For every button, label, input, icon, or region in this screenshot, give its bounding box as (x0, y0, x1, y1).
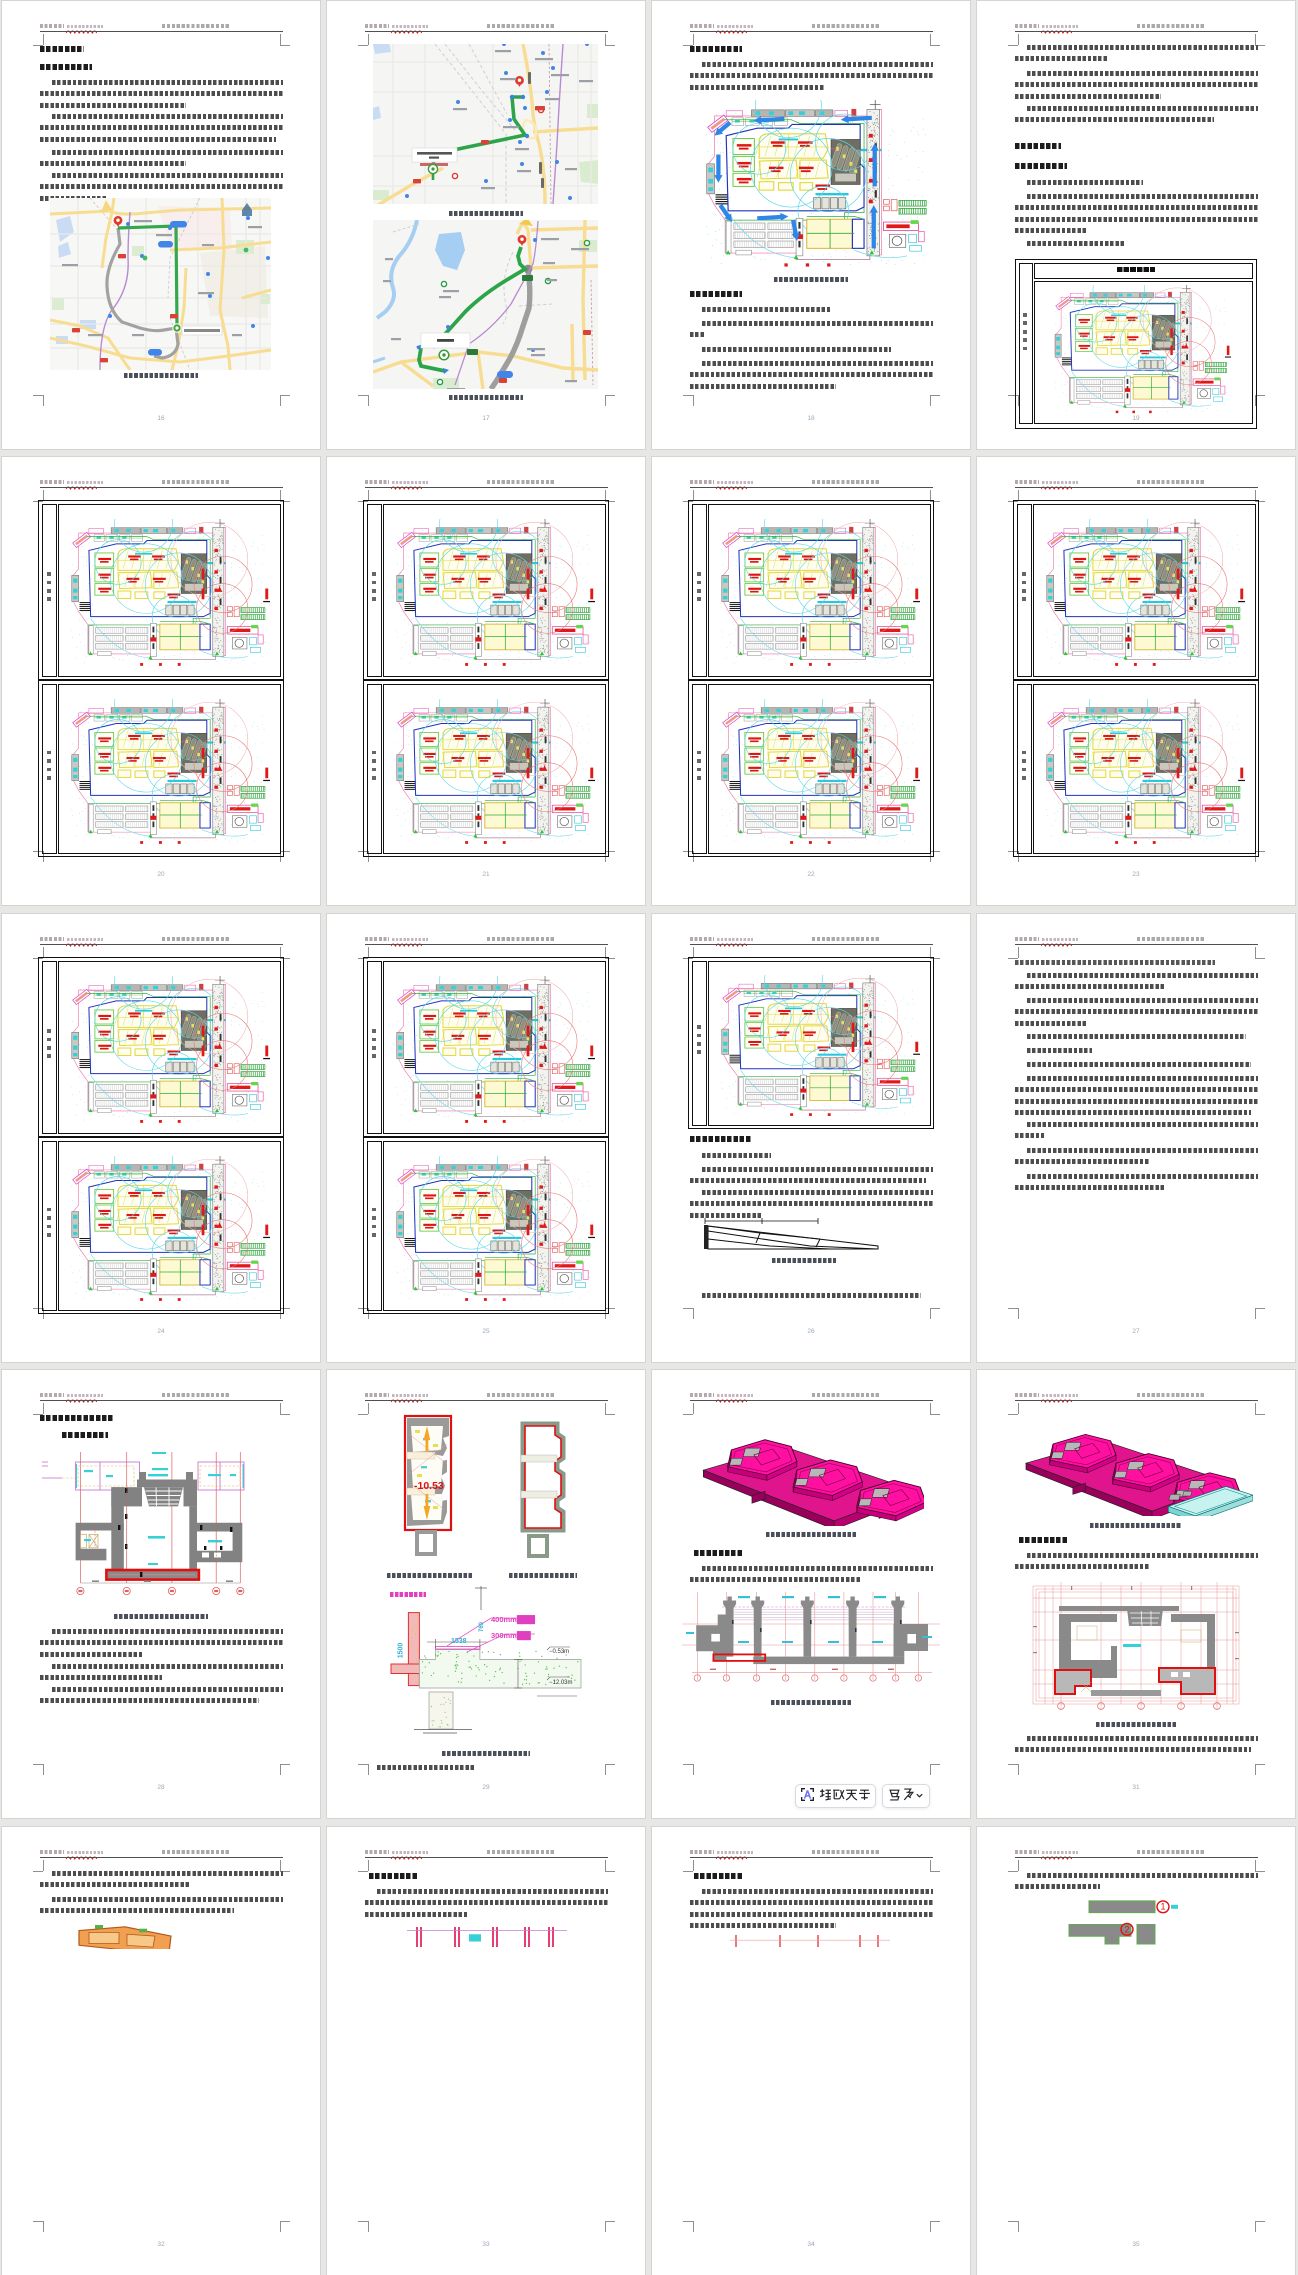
svg-text:1: 1 (1160, 1902, 1165, 1912)
svg-text:2: 2 (1124, 1924, 1129, 1934)
